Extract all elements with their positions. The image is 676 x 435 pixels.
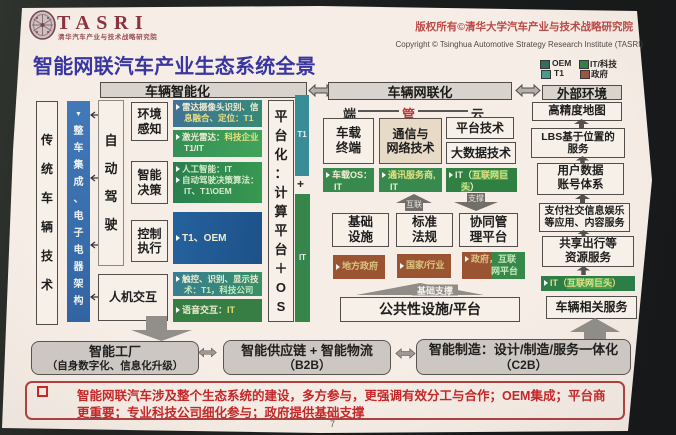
svg-text:互联: 互联 (406, 200, 422, 209)
svg-text:支撑: 支撑 (468, 193, 484, 203)
svg-text:基础支撑: 基础支撑 (416, 285, 453, 296)
